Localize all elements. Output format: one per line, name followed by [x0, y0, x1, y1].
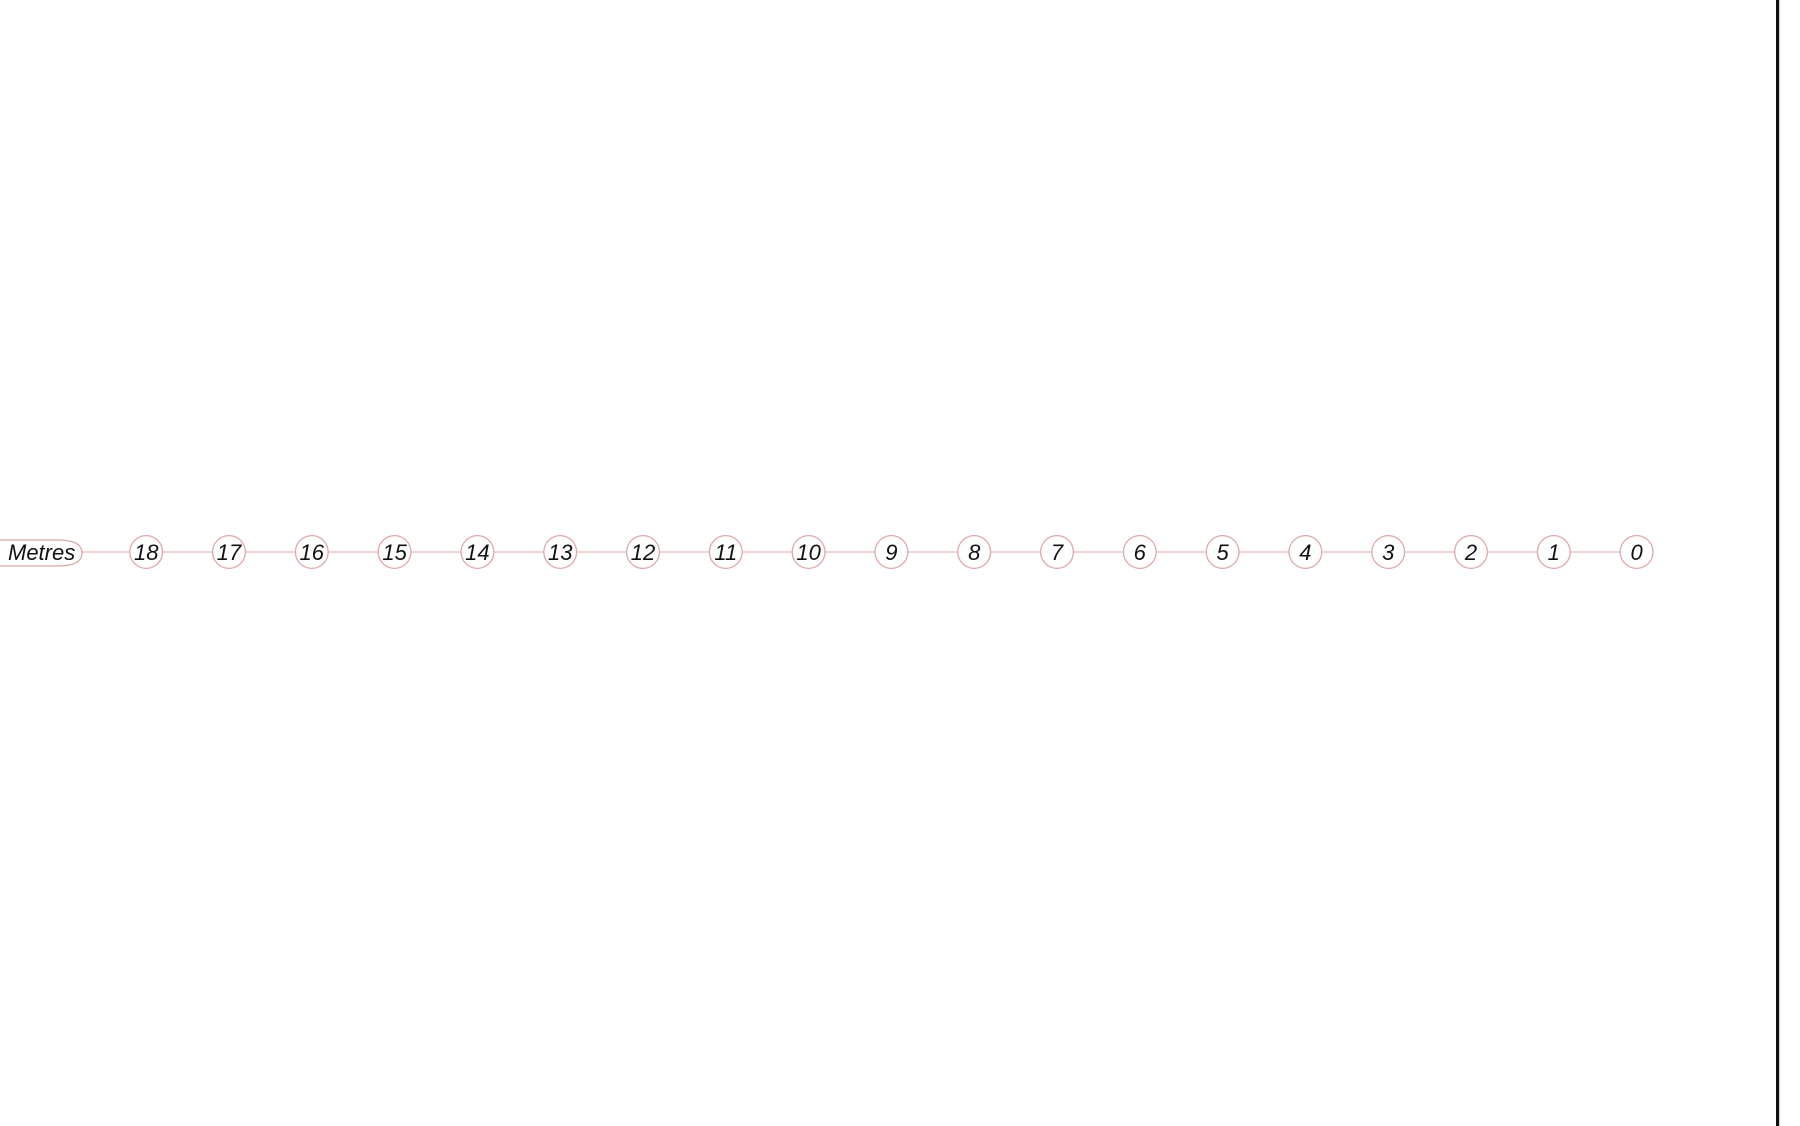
svg-text:8: 8 [968, 540, 981, 565]
svg-text:17: 17 [217, 540, 242, 565]
svg-text:16: 16 [300, 540, 325, 565]
svg-text:Metres: Metres [8, 540, 75, 565]
svg-text:4: 4 [1299, 540, 1311, 565]
svg-text:14: 14 [465, 540, 489, 565]
svg-text:0: 0 [1630, 540, 1643, 565]
svg-text:6: 6 [1134, 540, 1147, 565]
svg-text:9: 9 [885, 540, 897, 565]
svg-text:13: 13 [548, 540, 573, 565]
svg-text:11: 11 [714, 540, 737, 565]
svg-text:10: 10 [796, 540, 821, 565]
svg-text:1: 1 [1548, 540, 1560, 565]
svg-text:12: 12 [631, 540, 655, 565]
svg-text:15: 15 [382, 540, 407, 565]
svg-text:3: 3 [1382, 540, 1395, 565]
svg-text:5: 5 [1216, 540, 1229, 565]
svg-text:2: 2 [1464, 540, 1477, 565]
svg-text:7: 7 [1051, 540, 1064, 565]
svg-text:18: 18 [134, 540, 159, 565]
